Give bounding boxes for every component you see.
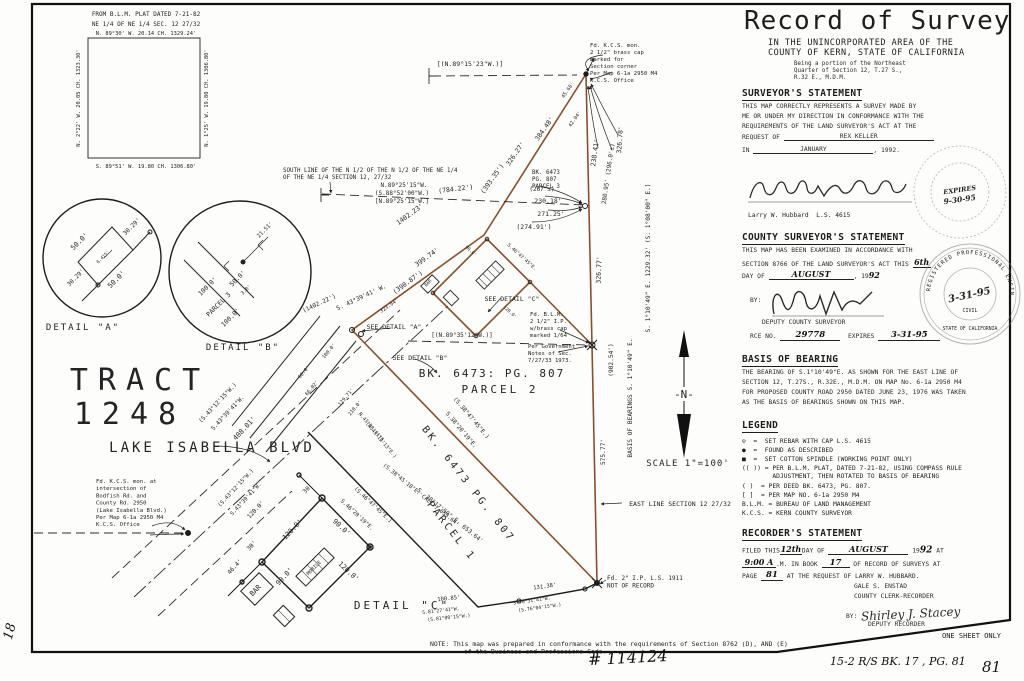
map-label: SCALE 1"=100' (646, 459, 729, 469)
parcel3-deed-note: BK. 6473 (532, 170, 560, 176)
legend-item: [ ] = PER MAP NO. 6-1a 2950 M4 (742, 492, 860, 500)
map-label: 408.01' (232, 415, 258, 442)
signature-stroke (750, 181, 906, 198)
found-blm-pipe-note: Fd. B.L.M. (530, 312, 564, 318)
map-label: (902.54') (608, 343, 615, 377)
county-line-2: SECTION 8766 OF THE LAND SURVEYOR'S ACT … (742, 258, 931, 268)
legend-item: ■ = SET COTTON SPINDLE (WORKING POINT ON… (742, 456, 913, 464)
time-blank: 9:00 A (742, 558, 776, 568)
found-kcs-intersection-note: (Lake Isabella Blvd.) (96, 508, 167, 514)
map-label: EAST LINE SECTION 12 27/32 (629, 500, 731, 508)
surveyor-name: Larry W. Hubbard L.S. 4615 (748, 212, 850, 219)
found-kcs-section-corner-note: 2 1/2" brass cap (590, 50, 645, 56)
found-iron-pipe-note: Fd. 2" I.P. L.S. 1911 (607, 575, 683, 582)
subtitle-line-1: IN THE UNINCORPORATED AREA OF THE (768, 38, 953, 48)
blm-government-notes: 7/27/33 1973. (528, 358, 572, 364)
in-month-line: IN JANUARY, 1992. (742, 147, 900, 154)
legend-item: B.L.M. = BUREAU OF LAND MANAGEMENT (742, 501, 871, 509)
of-record-label: OF RECORD OF SURVEYS AT (853, 561, 940, 568)
map-labels: FROM B.L.M. PLAT DATED 7-21-82NE 1/4 OF … (46, 11, 731, 623)
registered-engineer-stamp: REGISTERED PROFESSIONAL ENGINEER STATE O… (908, 232, 1024, 352)
basis-line-4: AS THE BASIS OF BEARINGS SHOWN ON THIS M… (742, 400, 905, 406)
county-line-2-text: SECTION 8766 OF THE LAND SURVEYOR'S ACT … (742, 261, 909, 268)
legend-heading: LEGEND (742, 420, 778, 433)
map-label: 50.0' (106, 269, 127, 290)
detail-a-geometry (78, 227, 152, 301)
svg-text:REGISTERED PROFESSIONAL ENGINE: REGISTERED PROFESSIONAL ENGINEER (908, 232, 1014, 296)
map-label: 120.0' (502, 305, 518, 320)
map-label: 129.71' (337, 387, 355, 407)
page-label: PAGE (742, 573, 757, 580)
recorders-statement-heading: RECORDER'S STATEMENT (742, 528, 862, 541)
south-line-note: SOUTH LINE OF THE N 1/2 OF THE N 1/2 OF … (283, 168, 458, 174)
map-label: 280.95' (296.0'±) (601, 143, 616, 205)
map-label: N. 89°30' W. 20.14 CH. 1329.24' (96, 31, 197, 37)
found-kcs-intersection-note: K.C.S. Office (96, 522, 140, 528)
basis-line-3: FOR PROPOSED COUNTY ROAD 2950 DATED JUNE… (742, 390, 966, 396)
page-number-handwritten: 81 (982, 658, 1001, 676)
map-label: N.89°25'15"W. (381, 182, 428, 189)
map-label: (S.38°47'45"E.) (452, 396, 490, 440)
map-label: 100.85' (437, 595, 461, 603)
found-kcs-intersection-note: Per Map 6-1a 2950 M4 (96, 515, 164, 521)
stamp-ring-text: REGISTERED PROFESSIONAL ENGINEER (908, 232, 1014, 296)
subtitle-line-2: COUNTY OF KERN, STATE OF CALIFORNIA (768, 48, 965, 58)
map-label: S. 43°39'41' W. (335, 283, 387, 312)
filed-this-label: FILED THIS (742, 547, 780, 554)
recorder-by-line: BY: Shirley J. Stacey (846, 608, 961, 620)
one-sheet-only: ONE SHEET ONLY (942, 632, 1001, 640)
map-label: (N.43°12'13"E.) (364, 421, 398, 459)
found-kcs-intersection-note: County Rd. 2950 (96, 501, 147, 507)
map-label: (S.88°52'00"W.) (375, 190, 429, 197)
county-year-prefix: , 19 (854, 273, 869, 280)
map-label: 21.51' (256, 221, 274, 239)
map-label: DETAIL "A" (46, 323, 120, 333)
map-label: BASIS OF BEARINGS S. 1°10'49" E. (626, 338, 634, 457)
map-label: 100.0' (219, 306, 241, 328)
map-label: 326.77' (595, 256, 604, 284)
signature-stroke (773, 292, 872, 314)
filed-month-value: AUGUST (849, 544, 888, 554)
conformance-note-line2: of the Business and Professions Code. (464, 648, 606, 656)
stamp-ring2-text: STATE OF CALIFORNIA (943, 326, 998, 332)
map-label: 100.0' (321, 343, 337, 361)
recorder-line-1: FILED THIS12thDAY OF AUGUST 1992 AT (742, 545, 944, 555)
month-blank-county: AUGUST (769, 270, 854, 280)
map-label: 30' (246, 540, 259, 553)
map-label: 50.0' (69, 231, 90, 252)
map-label: 238.41' (589, 139, 601, 167)
by-label: BY: (750, 298, 761, 304)
filed-year-value: 92 (920, 545, 933, 555)
record-of-survey-sheet: { "rp": { "title": "Record of Survey", "… (0, 0, 1024, 681)
map-label: N. 2°22' W. 20.05 CH. 1323.30' (76, 49, 82, 146)
map-label: S. 89°51' W. 19.80 CH. 1306.80' (96, 164, 197, 170)
expires-label: EXPIRES (848, 333, 875, 340)
south-line-note: OF THE NE 1/4 SECTION 12, 27/32 (283, 175, 391, 181)
in-book-label: .M. IN BOOK (776, 561, 818, 568)
map-label: 230.18' (534, 197, 561, 205)
page-title: Record of Survey (744, 6, 1010, 36)
map-label: 60.0' (297, 365, 311, 380)
map-label: MOBILE (306, 560, 323, 577)
map-label: SEE DETAIL "B" (393, 354, 448, 362)
map-label: BK. 6473: PG. 807 (419, 367, 566, 380)
map-label: (274.91') (516, 223, 551, 231)
map-label: 42.04' (568, 110, 583, 128)
stamp-civil-label: CIVIL (962, 308, 977, 314)
map-label: 1248 (74, 397, 186, 432)
found-blm-pipe-note: 2 1/2" I.P. (530, 319, 567, 325)
legend-item: ADJUSTMENT, THEN ROTATED TO BASIS OF BEA… (742, 473, 939, 481)
at-label: AT (936, 547, 944, 554)
rce-label: RCE NO. (750, 333, 777, 340)
map-label: NE 1/4 OF NE 1/4 SEC. 12 27/32 (92, 21, 201, 28)
map-label: 131.38' (533, 582, 557, 591)
map-label: 120.0' (246, 500, 266, 521)
map-label: SEE DETAIL "C" (485, 295, 540, 303)
being-line-2: Quarter of Section 12, T.27 S., (794, 68, 902, 74)
map-label: 120.0' (281, 518, 304, 542)
map-label: 120.0' (336, 560, 360, 583)
basis-line-2: SECTION 12, T.27S., R.32E., M.D.M. ON MA… (742, 380, 962, 386)
day-of-label-rec: DAY OF (802, 547, 825, 554)
map-label: 50.0' (228, 269, 248, 289)
found-kcs-intersection-note: Fd. K.C.S. mon. at (96, 479, 157, 485)
map-label: 1402.23' (395, 202, 425, 227)
map-label: FROM B.L.M. PLAT DATED 7-21-82 (92, 11, 201, 18)
legend-item: ● = FOUND AS DESCRIBED (742, 447, 833, 455)
found-kcs-intersection-note: intersection of (96, 486, 147, 492)
book-value: 17 (830, 558, 842, 568)
map-label: (393.35') (479, 162, 506, 195)
stamp-date-handwritten: 3-31-95 (947, 286, 991, 306)
county-line-3: DAY OF AUGUST, 1992 (742, 270, 880, 280)
blm-government-notes: Notes of Sec. (528, 351, 572, 357)
map-label: BAR (248, 583, 263, 598)
filed-day-value: 12th (781, 544, 802, 554)
map-label: -N- (674, 388, 694, 401)
map-label: [(N.89°15'23"W.)] (437, 60, 504, 68)
surveyors-statement-heading: SURVEYOR'S STATEMENT (742, 88, 862, 101)
clerk-name: GALE S. ENSTAD (854, 584, 907, 590)
parcel3-deed-note: PG. 807 (532, 177, 557, 183)
filing-index-handwritten: 15-2 R/S BK. 17 , PG. 81 (830, 655, 966, 668)
map-label: 30.29' (66, 268, 86, 288)
deputy-recorder-title: DEPUTY RECORDER (868, 622, 925, 628)
recorder-line-2: 9:00 A.M. IN BOOK 17 OF RECORD OF SURVEY… (742, 558, 941, 568)
found-kcs-section-corner-note: Per Map 6-1a 2950 M4 (590, 71, 658, 77)
book-blank: 17 (822, 559, 850, 569)
county-month-value: AUGUST (792, 269, 831, 279)
map-label: LAKE ISABELLA BLVD (109, 440, 315, 456)
map-label: 30' (302, 483, 315, 496)
by-label-recorder: BY: (846, 613, 857, 620)
small-outbuilding (273, 605, 294, 626)
page-value: 81 (766, 570, 778, 580)
legend-item: K.C.S. = KERN COUNTY SURVEYOR (742, 510, 852, 518)
map-label: PARCEL 2 (462, 383, 539, 396)
year-value: , 1992. (873, 147, 900, 154)
month-value: JANUARY (800, 146, 827, 153)
map-label: 30.29' (122, 217, 142, 237)
map-label: (784.22') (438, 183, 474, 195)
right-panel: Record of Survey IN THE UNINCORPORATED A… (736, 0, 1016, 681)
basis-of-bearing-heading: BASIS OF BEARING (742, 354, 838, 367)
county-year-value: 92 (869, 270, 880, 280)
day-of-label: DAY OF (742, 273, 765, 280)
deputy-county-surveyor-signature (766, 284, 891, 320)
rce-blank: 29778 (780, 331, 840, 341)
at-request-label: AT THE REQUEST OF LARRY W. HUBBARD. (787, 573, 920, 580)
filed-year-prefix: 19 (912, 547, 920, 554)
month-blank: JANUARY (753, 147, 873, 154)
request-of-value: REX KELLER (840, 133, 878, 140)
map-label: BAR (423, 278, 433, 288)
time-value: 9:00 A (745, 557, 774, 567)
found-kcs-section-corner-note: Fd. K.C.S. mon. (590, 43, 641, 49)
map-label: SEE DETAIL "A" (367, 323, 422, 331)
request-of-label: REQUEST OF (742, 134, 780, 141)
recorder-line-3: PAGE 81 AT THE REQUEST OF LARRY W. HUBBA… (742, 571, 919, 581)
clerk-title: COUNTY CLERK-RECORDER (854, 594, 934, 600)
map-label: 46.4' (226, 558, 243, 576)
blm-government-notes: Per Government (528, 344, 575, 350)
map-label: 326.78' (615, 126, 625, 154)
map-label: 323.94' (379, 298, 400, 315)
found-kcs-section-corner-note: Section corner (590, 64, 638, 70)
legend-item: ( ) = PER DEED BK. 6473, PG. 807. (742, 483, 871, 491)
map-label: S.46°47'45"E. (506, 242, 538, 272)
filed-month-blank: AUGUST (828, 545, 908, 555)
being-line-1: Being a portion of the Northeast (794, 61, 906, 67)
found-kcs-section-corner-note: K.C.S. Office (590, 78, 634, 84)
map-label: DETAIL "B" (206, 343, 280, 353)
found-iron-pipe-note: NOT OF RECORD (607, 583, 654, 590)
in-label: IN (742, 147, 750, 154)
map-label: 90.0' (331, 517, 352, 537)
map-label: [(N.89°35'12"W.)] (431, 332, 492, 339)
surveyor-line-3: REQUIREMENTS OF THE LAND SURVEYOR'S ACT … (742, 124, 916, 130)
map-label: 6.415' (95, 249, 111, 265)
map-label: 399.74' (413, 246, 440, 269)
detail-b-geometry (184, 237, 268, 316)
filed-day-blank: 12th (780, 545, 802, 555)
rce-value: 29778 (796, 330, 826, 340)
map-label: TRACT (70, 363, 210, 398)
found-kcs-intersection-note: Bodfish Rd. and (96, 493, 147, 499)
map-label: 575.77' (600, 439, 607, 465)
map-label: 326.27' (504, 140, 526, 167)
found-blm-pipe-note: w/brass cap (530, 326, 568, 332)
page-blank: 81 (761, 571, 783, 581)
map-label: 271.25' (537, 210, 564, 218)
county-surveyors-statement-heading: COUNTY SURVEYOR'S STATEMENT (742, 232, 905, 245)
deputy-county-surveyor-title: DEPUTY COUNTY SURVEYOR (762, 320, 845, 326)
deputy-recorder-signature: Shirley J. Stacey (861, 605, 961, 622)
map-label: S. 1°10'49" E. 1229.32' (S. 1°08'00" E.) (644, 183, 652, 332)
surveyor-line-2: ME OR UNDER MY DIRECTION IN CONFORMANCE … (742, 114, 924, 120)
map-label: N. 1°25' W. 19.80 CH. 1306.80' (204, 49, 210, 146)
county-line-1: THIS MAP HAS BEEN EXAMINED IN ACCORDANCE… (742, 248, 913, 254)
surveyor-line-1: THIS MAP CORRECTLY REPRESENTS A SURVEY M… (742, 104, 916, 110)
being-line-3: R.32 E., M.D.M. (794, 75, 846, 81)
found-blm-pipe-note: marked 1/64 (530, 333, 568, 339)
lot-lines (232, 316, 356, 452)
map-label: 45.60' (561, 81, 576, 99)
legend-item: ⊙ = SET REBAR WITH CAP L.S. 4615 (742, 438, 871, 446)
map-label: 100.0' (196, 275, 218, 297)
found-kcs-section-corner-note: marked for (590, 57, 624, 63)
surveyor-signature (744, 168, 919, 210)
basis-line-1: THE BEARING OF S.1°10'49"E. AS SHOWN FOR… (742, 370, 958, 376)
blm-plat-inset-box (88, 38, 200, 158)
map-label: (267'±) (529, 186, 554, 193)
